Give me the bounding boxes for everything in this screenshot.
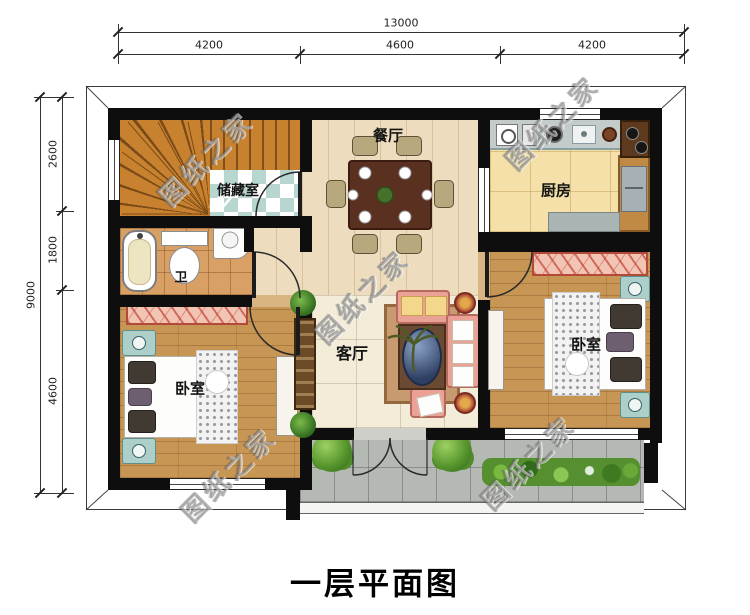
rug-palm-motif <box>388 326 440 372</box>
room-label-bedroom-left: 卧室 <box>175 378 205 399</box>
room-label-storage: 储藏室 <box>217 180 259 200</box>
room-label-bath: 卫 <box>174 267 187 286</box>
plan-title: 一层平面图 <box>290 559 460 604</box>
sink-basin <box>222 232 238 248</box>
door-arcs <box>250 172 532 475</box>
room-label-living: 客厅 <box>336 340 368 364</box>
room-label-bedroom-right: 卧室 <box>571 334 601 355</box>
floor-plan-canvas: 13000 4200 4600 4200 9000 2600 1800 4600 <box>0 0 750 615</box>
table-centerpiece <box>377 187 393 203</box>
room-label-dining: 餐厅 <box>373 125 403 146</box>
room-label-kitchen: 厨房 <box>541 180 571 201</box>
